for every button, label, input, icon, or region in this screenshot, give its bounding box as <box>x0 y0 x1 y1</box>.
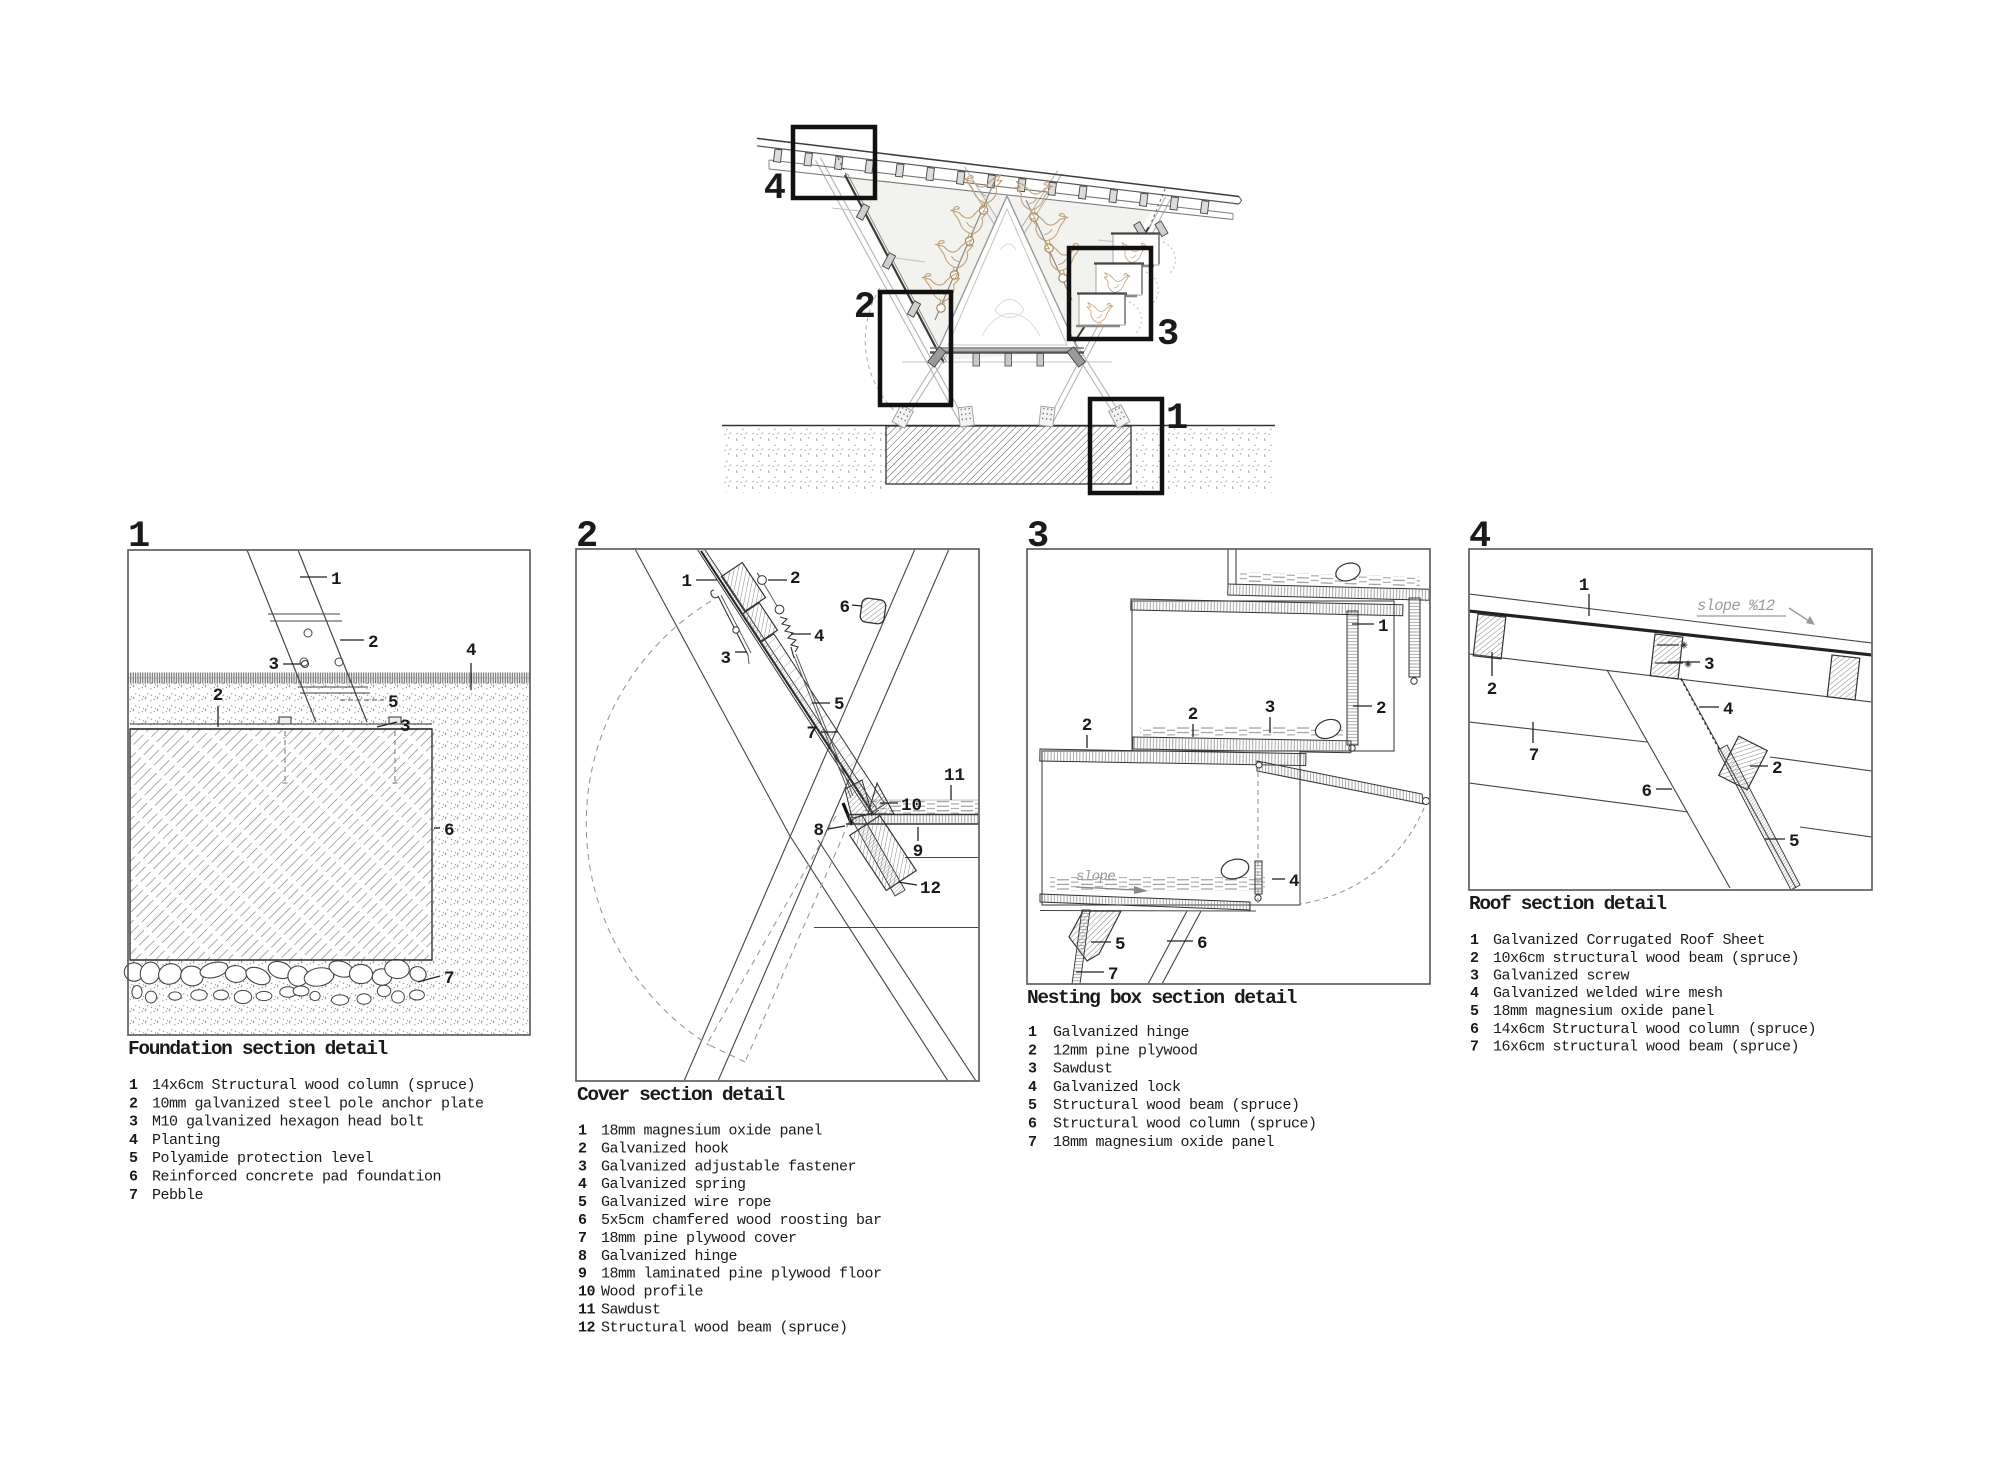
svg-text:Nesting box section detail: Nesting box section detail <box>1027 987 1297 1009</box>
svg-text:8: 8 <box>813 821 824 841</box>
svg-text:2: 2 <box>129 1095 138 1112</box>
svg-text:Structural wood beam (spruce): Structural wood beam (spruce) <box>601 1319 848 1336</box>
svg-text:6: 6 <box>444 821 455 841</box>
svg-text:7: 7 <box>1470 1039 1479 1056</box>
svg-text:18mm pine plywood cover: 18mm pine plywood cover <box>601 1230 797 1247</box>
svg-text:5: 5 <box>1115 935 1126 955</box>
svg-text:2: 2 <box>368 633 379 653</box>
svg-text:5: 5 <box>1789 832 1800 852</box>
svg-text:4: 4 <box>1028 1079 1037 1096</box>
svg-text:Foundation section detail: Foundation section detail <box>128 1038 387 1060</box>
svg-text:7: 7 <box>1028 1134 1037 1151</box>
svg-text:6: 6 <box>129 1169 138 1186</box>
svg-text:Sawdust: Sawdust <box>601 1302 661 1319</box>
svg-text:2: 2 <box>790 569 801 589</box>
svg-text:10: 10 <box>901 796 922 816</box>
svg-text:Structural wood column (spruce: Structural wood column (spruce) <box>1053 1116 1317 1133</box>
svg-text:18mm magnesium oxide panel: 18mm magnesium oxide panel <box>601 1123 823 1140</box>
svg-text:7: 7 <box>806 724 817 744</box>
svg-text:2: 2 <box>1376 699 1387 719</box>
svg-text:Cover section detail: Cover section detail <box>577 1084 785 1106</box>
svg-text:3: 3 <box>1470 968 1479 985</box>
svg-text:slope %12: slope %12 <box>1697 597 1775 615</box>
svg-text:4: 4 <box>764 168 786 210</box>
svg-text:Polyamide protection level: Polyamide protection level <box>152 1150 374 1167</box>
svg-text:6: 6 <box>1197 934 1208 954</box>
svg-text:Reinforced concrete pad founda: Reinforced concrete pad foundation <box>152 1169 441 1186</box>
svg-text:5: 5 <box>1028 1097 1037 1114</box>
svg-text:6: 6 <box>1028 1116 1037 1133</box>
svg-text:Galvanized screw: Galvanized screw <box>1493 968 1630 985</box>
svg-text:2: 2 <box>1487 680 1498 700</box>
svg-text:5: 5 <box>129 1150 138 1167</box>
svg-text:2: 2 <box>1188 705 1199 725</box>
svg-text:6: 6 <box>1641 782 1652 802</box>
svg-text:Galvanized hinge: Galvanized hinge <box>601 1248 738 1265</box>
svg-text:4: 4 <box>1289 872 1300 892</box>
svg-text:3: 3 <box>129 1114 138 1131</box>
svg-text:8: 8 <box>578 1248 587 1265</box>
svg-text:1: 1 <box>578 1123 587 1140</box>
svg-text:Wood profile: Wood profile <box>601 1284 704 1301</box>
svg-text:10mm galvanized steel pole anc: 10mm galvanized steel pole anchor plate <box>152 1095 484 1112</box>
svg-text:14x6cm Structural wood column: 14x6cm Structural wood column (spruce) <box>152 1077 475 1094</box>
svg-text:6: 6 <box>839 598 850 618</box>
svg-text:6: 6 <box>578 1212 587 1229</box>
svg-text:1: 1 <box>129 1077 138 1094</box>
svg-text:3: 3 <box>1265 698 1276 718</box>
svg-text:7: 7 <box>444 969 455 989</box>
svg-text:Galvanized welded wire mesh: Galvanized welded wire mesh <box>1493 985 1723 1002</box>
svg-text:2: 2 <box>1028 1042 1037 1059</box>
svg-text:3: 3 <box>1027 516 1049 558</box>
svg-text:2: 2 <box>1772 759 1783 779</box>
svg-text:2: 2 <box>576 516 598 558</box>
svg-text:18mm laminated pine plywood fl: 18mm laminated pine plywood floor <box>601 1266 882 1283</box>
svg-text:Galvanized Corrugated Roof She: Galvanized Corrugated Roof Sheet <box>1493 932 1765 949</box>
svg-text:Roof section detail: Roof section detail <box>1469 893 1666 915</box>
svg-text:4: 4 <box>578 1176 587 1193</box>
svg-text:4: 4 <box>1469 516 1491 558</box>
svg-text:Galvanized lock: Galvanized lock <box>1053 1079 1181 1096</box>
svg-text:1: 1 <box>1470 932 1479 949</box>
svg-text:3: 3 <box>1028 1061 1037 1078</box>
svg-text:Planting: Planting <box>152 1132 220 1149</box>
svg-text:Galvanized adjustable fastener: Galvanized adjustable fastener <box>601 1158 856 1175</box>
svg-text:10x6cm structural wood beam (s: 10x6cm structural wood beam (spruce) <box>1493 950 1799 967</box>
svg-text:4: 4 <box>129 1132 138 1149</box>
svg-text:1: 1 <box>1028 1024 1037 1041</box>
svg-text:16x6cm structural wood beam (s: 16x6cm structural wood beam (spruce) <box>1493 1039 1799 1056</box>
svg-text:5: 5 <box>1470 1003 1479 1020</box>
svg-text:5x5cm chamfered wood roosting: 5x5cm chamfered wood roosting bar <box>601 1212 882 1229</box>
svg-text:7: 7 <box>578 1230 587 1247</box>
svg-text:3: 3 <box>400 717 411 737</box>
svg-text:Structural wood beam (spruce): Structural wood beam (spruce) <box>1053 1097 1300 1114</box>
svg-text:2: 2 <box>1470 950 1479 967</box>
svg-text:4: 4 <box>1470 985 1479 1002</box>
svg-text:Pebble: Pebble <box>152 1187 204 1204</box>
svg-text:2: 2 <box>1082 716 1093 736</box>
svg-text:9: 9 <box>578 1266 587 1283</box>
svg-text:3: 3 <box>268 655 279 675</box>
svg-text:2: 2 <box>213 686 224 706</box>
svg-text:1: 1 <box>1579 576 1590 596</box>
svg-text:1: 1 <box>128 516 150 558</box>
svg-text:5: 5 <box>834 695 845 715</box>
svg-text:10: 10 <box>578 1284 596 1301</box>
svg-text:1: 1 <box>1378 617 1389 637</box>
svg-text:2: 2 <box>854 287 876 329</box>
svg-text:3: 3 <box>720 649 731 669</box>
svg-text:Galvanized wire rope: Galvanized wire rope <box>601 1194 772 1211</box>
svg-text:5: 5 <box>388 693 399 713</box>
svg-text:9: 9 <box>913 842 924 862</box>
svg-text:3: 3 <box>578 1158 587 1175</box>
svg-text:7: 7 <box>1529 746 1540 766</box>
svg-text:Galvanized hinge: Galvanized hinge <box>1053 1024 1190 1041</box>
svg-text:3: 3 <box>1157 314 1179 356</box>
svg-text:18mm magnesium oxide panel: 18mm magnesium oxide panel <box>1493 1003 1715 1020</box>
svg-text:11: 11 <box>944 766 965 786</box>
svg-text:7: 7 <box>1108 965 1119 985</box>
svg-text:2: 2 <box>578 1140 587 1157</box>
svg-text:Galvanized hook: Galvanized hook <box>601 1140 729 1157</box>
svg-text:3: 3 <box>1704 655 1715 675</box>
svg-text:4: 4 <box>814 627 825 647</box>
svg-text:12: 12 <box>920 879 941 899</box>
svg-text:1: 1 <box>1166 398 1188 440</box>
svg-text:1: 1 <box>681 572 692 592</box>
svg-text:11: 11 <box>578 1302 596 1319</box>
svg-text:12mm pine plywood: 12mm pine plywood <box>1053 1042 1198 1059</box>
svg-text:12: 12 <box>578 1319 596 1336</box>
svg-text:slope: slope <box>1076 869 1115 885</box>
svg-text:M10 galvanized hexagon head bo: M10 galvanized hexagon head bolt <box>152 1114 424 1131</box>
svg-text:Sawdust: Sawdust <box>1053 1061 1113 1078</box>
svg-text:4: 4 <box>466 641 477 661</box>
svg-text:4: 4 <box>1723 700 1734 720</box>
svg-text:5: 5 <box>578 1194 587 1211</box>
svg-text:6: 6 <box>1470 1021 1479 1038</box>
svg-text:7: 7 <box>129 1187 138 1204</box>
svg-text:14x6cm Structural wood column: 14x6cm Structural wood column (spruce) <box>1493 1021 1816 1038</box>
svg-text:Galvanized spring: Galvanized spring <box>601 1176 746 1193</box>
svg-text:1: 1 <box>331 570 342 590</box>
svg-text:18mm magnesium oxide panel: 18mm magnesium oxide panel <box>1053 1134 1275 1151</box>
